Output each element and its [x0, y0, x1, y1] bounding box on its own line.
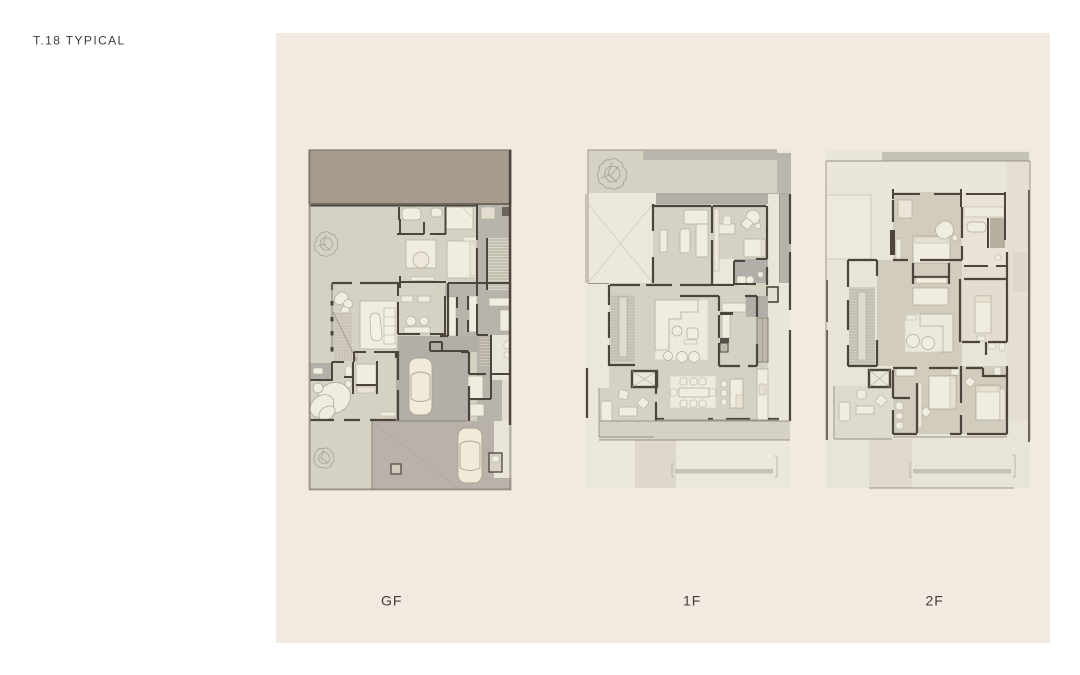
svg-text:T.18 TYPICAL: T.18 TYPICAL [33, 34, 126, 48]
svg-text:1F: 1F [683, 593, 701, 609]
svg-text:2F: 2F [926, 593, 944, 609]
svg-text:GF: GF [381, 593, 402, 609]
